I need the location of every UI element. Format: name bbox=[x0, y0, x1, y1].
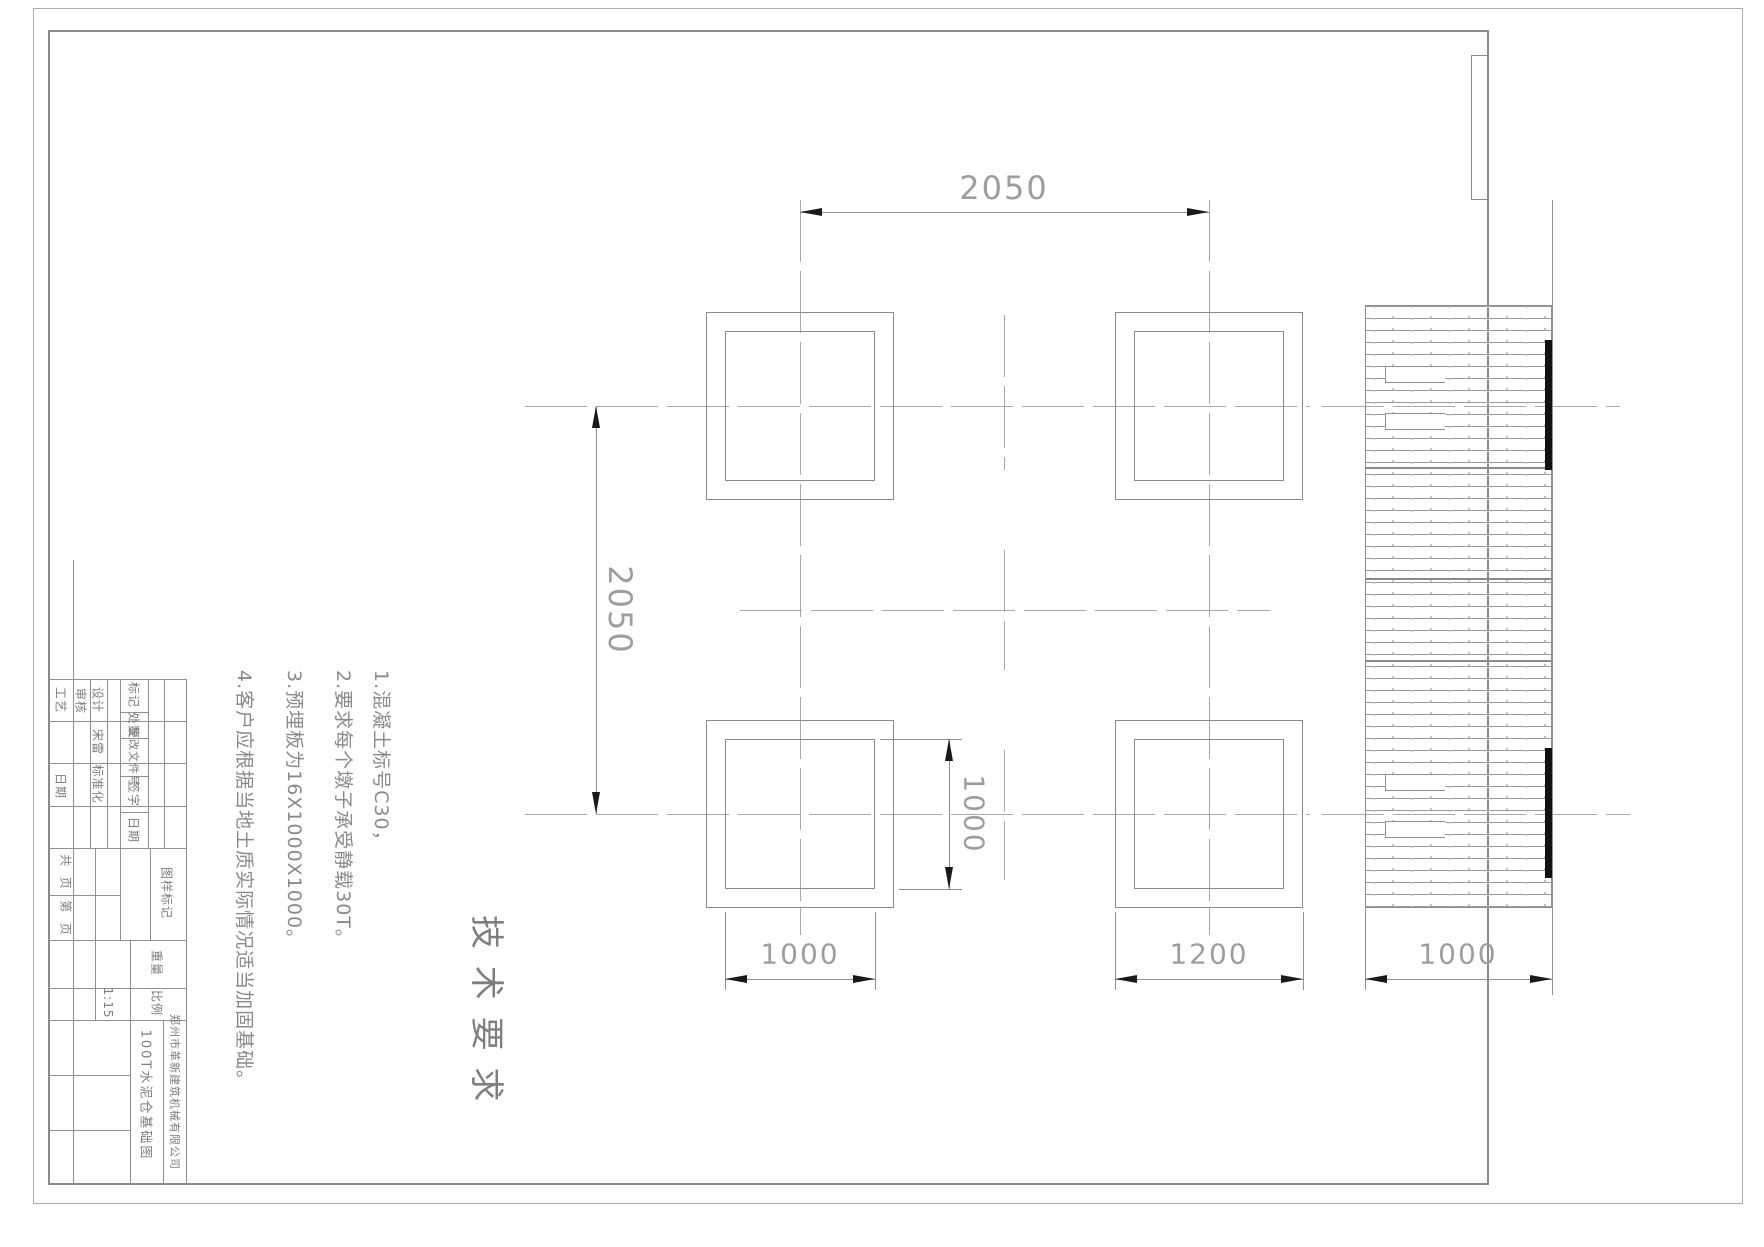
dim-b1000-ext-right bbox=[875, 912, 876, 990]
titleblock-line-v9 bbox=[130, 940, 131, 1020]
tech-note-3: 3.预埋板为16X1000X1000。 bbox=[282, 670, 309, 949]
anchor-slot-top-1 bbox=[1385, 366, 1445, 383]
titleblock-label-standardization: 标准化 bbox=[90, 764, 107, 803]
titleblock-line-v2 bbox=[107, 679, 108, 848]
section-stratum-line-3 bbox=[1365, 660, 1552, 662]
titleblock-line-h8 bbox=[48, 988, 186, 989]
plate-outline-bottom-right bbox=[1134, 739, 1284, 889]
titleblock-label-mark: 标记 bbox=[126, 682, 143, 708]
dim-b1200-ext-right bbox=[1303, 912, 1304, 990]
titleblock-line-v5 bbox=[164, 679, 165, 848]
section-stratum-line-1 bbox=[1365, 467, 1552, 469]
titleblock-label-date: 日期 bbox=[126, 817, 143, 843]
titleblock-line-v3 bbox=[120, 679, 121, 848]
titleblock-label-weight: 重量 bbox=[149, 950, 166, 976]
section-right-extension-line bbox=[1552, 200, 1553, 995]
tech-requirements-title: 技 术 要 求 bbox=[465, 915, 514, 1104]
dim-left-value: 2050 bbox=[601, 565, 639, 654]
dim-plate-value: 1000 bbox=[958, 774, 991, 853]
titleblock-label-total-pages: 共 页 bbox=[58, 854, 75, 890]
titleblock-line-v7 bbox=[120, 848, 121, 940]
titleblock-label-sign: 签字 bbox=[126, 781, 143, 807]
titleblock-label-process: 工艺 bbox=[53, 687, 70, 713]
titleblock-line-h4 bbox=[48, 806, 186, 807]
dim-b1200-value: 1200 bbox=[1169, 938, 1248, 971]
dim-b1000-arrow-right bbox=[853, 975, 875, 983]
titleblock-line-v10 bbox=[130, 1020, 131, 1185]
anchor-slot-top-2 bbox=[1385, 413, 1445, 430]
titleblock-line-h6 bbox=[48, 895, 120, 896]
titleblock-right-edge bbox=[186, 679, 187, 1185]
dim-b1200-arrow-left bbox=[1115, 975, 1137, 983]
plate-outline-bottom-left bbox=[725, 739, 875, 889]
titleblock-company-name: 郑州市革新建筑机械有限公司 bbox=[167, 1014, 183, 1170]
drawing-frame bbox=[48, 30, 1489, 1185]
dim-left-line bbox=[596, 406, 597, 814]
centerline-row-middle bbox=[740, 610, 1270, 611]
titleblock-line-h3 bbox=[48, 763, 186, 764]
dim-b1200-arrow-right bbox=[1281, 975, 1303, 983]
titleblock-label-review: 审核 bbox=[73, 688, 90, 714]
tech-note-1: 1.混凝土标号C30， bbox=[369, 670, 396, 851]
dim-left-arrow-bottom bbox=[592, 792, 600, 814]
titleblock-scale-value: 1:15 bbox=[101, 988, 115, 1019]
titleblock-line-h7 bbox=[48, 940, 186, 941]
titleblock-line-h9 bbox=[48, 1020, 186, 1021]
centerline-col-right-stub bbox=[1209, 908, 1210, 935]
dim-b1000-arrow-left bbox=[725, 975, 747, 983]
centerline-col-middle-upper bbox=[1004, 315, 1005, 470]
anchor-slot-bottom-2 bbox=[1385, 821, 1445, 838]
dim-plate-arrow-top bbox=[945, 739, 953, 761]
dim-top-value: 2050 bbox=[959, 169, 1048, 207]
titleblock-line-v4 bbox=[148, 679, 149, 848]
frame-corner-mark bbox=[1471, 55, 1489, 200]
tech-note-4: 4.客户应根据当地土质实际情况适当加固基础。 bbox=[232, 670, 259, 1090]
dim-plate-arrow-bottom bbox=[945, 867, 953, 889]
centerline-col-middle-lower bbox=[1004, 750, 1005, 880]
dim-bsec-arrow-right bbox=[1530, 975, 1552, 983]
centerline-col-left-stub bbox=[800, 908, 801, 935]
dim-top-arrow-right bbox=[1187, 208, 1209, 216]
titleblock-line-h2 bbox=[48, 721, 186, 722]
embedded-plate-bottom bbox=[1545, 748, 1552, 878]
titleblock-line-v6 bbox=[95, 848, 96, 1020]
dim-bsec-value: 1000 bbox=[1418, 938, 1497, 971]
titleblock-subline-4 bbox=[120, 812, 148, 813]
tech-note-2: 2.要求每个墩子承受静载30T。 bbox=[331, 670, 358, 949]
dim-b1200-line bbox=[1115, 979, 1303, 980]
titleblock-label-design: 设计 bbox=[90, 687, 107, 713]
dim-bsec-arrow-left bbox=[1365, 975, 1387, 983]
titleblock-line-h11 bbox=[48, 1130, 130, 1131]
titleblock-line-h1 bbox=[48, 679, 186, 680]
plate-outline-top-left bbox=[725, 331, 875, 481]
titleblock-label-change-doc: 更改文件号 bbox=[126, 727, 142, 787]
embedded-plate-top bbox=[1545, 340, 1552, 470]
titleblock-line-v11 bbox=[163, 1020, 164, 1185]
dim-plate-ext-bottom bbox=[899, 889, 962, 890]
dim-bsec-line bbox=[1365, 979, 1552, 980]
section-elevation-view bbox=[1365, 305, 1552, 908]
titleblock-line-v8 bbox=[150, 848, 151, 940]
anchor-slot-bottom-1 bbox=[1385, 774, 1445, 791]
titleblock-line-h5 bbox=[48, 848, 186, 849]
plate-outline-top-right bbox=[1134, 331, 1284, 481]
dim-top-line bbox=[800, 212, 1209, 213]
titleblock-label-scale: 比例 bbox=[149, 990, 166, 1016]
drawing-sheet: 2050 2050 1000 1000 1200 1000 技 术 要 求 1.… bbox=[0, 0, 1764, 1247]
titleblock-label-page-no: 第 页 bbox=[58, 900, 75, 936]
section-stratum-line-2 bbox=[1365, 578, 1552, 580]
dim-left-arrow-top bbox=[592, 406, 600, 428]
titleblock-drawing-title: 100T水泥仓基础图 bbox=[138, 1030, 157, 1161]
dim-b1000-value: 1000 bbox=[760, 938, 839, 971]
dim-top-arrow-left bbox=[800, 208, 822, 216]
titleblock-designer-name: 宋雷 bbox=[90, 729, 107, 755]
centerline-col-middle-cross bbox=[1004, 550, 1005, 670]
titleblock-label-drawing-mark: 图样标记 bbox=[159, 867, 176, 919]
titleblock-line-h10 bbox=[48, 1075, 130, 1076]
titleblock-label-process-date: 日期 bbox=[53, 773, 70, 799]
